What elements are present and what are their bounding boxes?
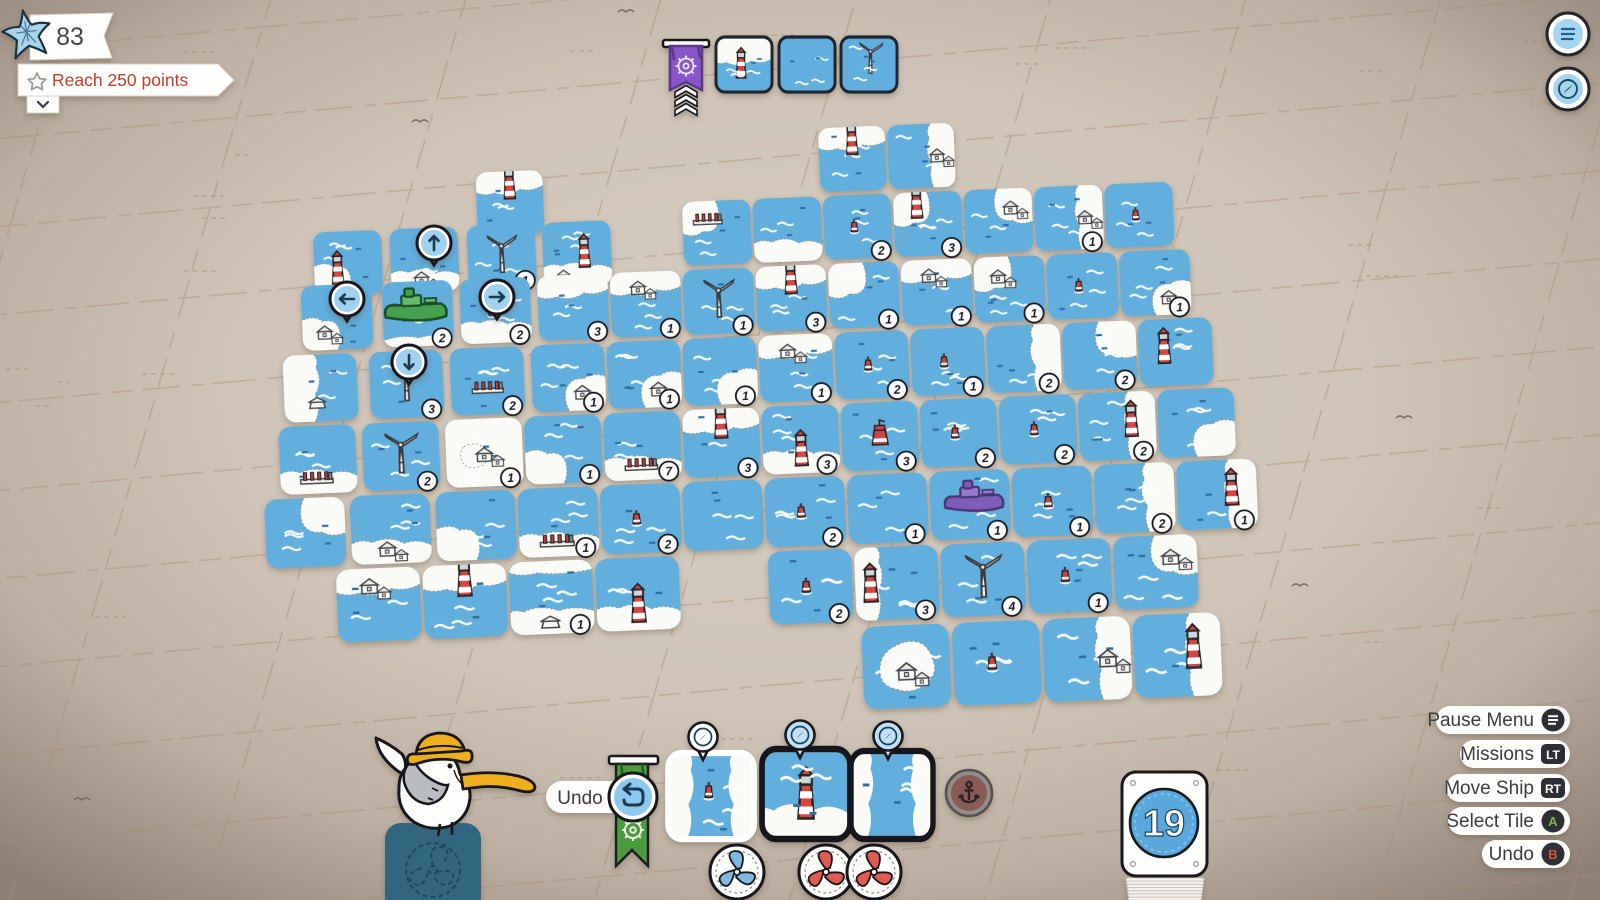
svg-text:2: 2 bbox=[835, 607, 844, 621]
svg-text:1: 1 bbox=[1176, 300, 1184, 314]
svg-text:2: 2 bbox=[515, 328, 524, 342]
svg-text:1: 1 bbox=[1076, 520, 1084, 534]
svg-text:2: 2 bbox=[438, 331, 447, 345]
svg-text:Reach 250 points: Reach 250 points bbox=[52, 70, 188, 90]
svg-text:1: 1 bbox=[590, 395, 598, 409]
svg-text:19: 19 bbox=[1143, 803, 1185, 845]
svg-text:3: 3 bbox=[812, 315, 820, 329]
svg-text:1: 1 bbox=[818, 386, 826, 400]
svg-text:1: 1 bbox=[970, 380, 978, 394]
svg-text:3: 3 bbox=[948, 241, 956, 255]
svg-text:2: 2 bbox=[1139, 444, 1148, 458]
svg-text:1: 1 bbox=[1030, 306, 1038, 320]
svg-text:3: 3 bbox=[744, 461, 752, 475]
svg-text:1: 1 bbox=[1241, 513, 1249, 527]
svg-text:2: 2 bbox=[508, 399, 517, 413]
svg-text:A: A bbox=[1548, 814, 1558, 829]
svg-text:1: 1 bbox=[1089, 235, 1097, 249]
svg-text:1: 1 bbox=[911, 527, 919, 541]
svg-text:3: 3 bbox=[428, 402, 436, 416]
svg-text:1: 1 bbox=[667, 322, 675, 336]
svg-text:Undo: Undo bbox=[1489, 844, 1534, 865]
svg-text:RT: RT bbox=[1545, 782, 1562, 796]
svg-text:Undo: Undo bbox=[557, 788, 602, 809]
svg-text:1: 1 bbox=[586, 468, 594, 482]
svg-text:LT: LT bbox=[1546, 748, 1560, 762]
svg-text:2: 2 bbox=[877, 244, 886, 258]
svg-text:2: 2 bbox=[981, 451, 990, 465]
svg-text:2: 2 bbox=[1060, 448, 1069, 462]
svg-text:3: 3 bbox=[823, 458, 831, 472]
svg-text:1: 1 bbox=[1095, 596, 1103, 610]
svg-text:2: 2 bbox=[1121, 373, 1130, 387]
svg-text:1: 1 bbox=[742, 389, 750, 403]
svg-text:1: 1 bbox=[994, 523, 1002, 537]
svg-text:1: 1 bbox=[666, 392, 674, 406]
svg-text:1: 1 bbox=[739, 318, 747, 332]
svg-text:Pause Menu: Pause Menu bbox=[1427, 710, 1534, 731]
svg-text:Select Tile: Select Tile bbox=[1446, 811, 1534, 832]
svg-text:2: 2 bbox=[893, 383, 902, 397]
svg-text:1: 1 bbox=[582, 541, 590, 555]
svg-text:2: 2 bbox=[1045, 376, 1054, 390]
svg-text:2: 2 bbox=[828, 530, 837, 544]
svg-text:Missions: Missions bbox=[1460, 744, 1534, 765]
svg-text:3: 3 bbox=[594, 325, 602, 339]
svg-text:1: 1 bbox=[885, 312, 893, 326]
svg-text:2: 2 bbox=[663, 537, 672, 551]
svg-text:B: B bbox=[1548, 847, 1557, 862]
svg-text:Move Ship: Move Ship bbox=[1444, 778, 1534, 799]
svg-text:1: 1 bbox=[958, 309, 966, 323]
svg-text:83: 83 bbox=[56, 23, 84, 51]
svg-text:1: 1 bbox=[507, 471, 515, 485]
svg-text:3: 3 bbox=[922, 603, 930, 617]
svg-text:1: 1 bbox=[577, 618, 585, 632]
svg-text:3: 3 bbox=[903, 454, 911, 468]
svg-text:4: 4 bbox=[1007, 600, 1016, 614]
svg-text:2: 2 bbox=[423, 474, 432, 488]
svg-text:2: 2 bbox=[1157, 517, 1166, 531]
